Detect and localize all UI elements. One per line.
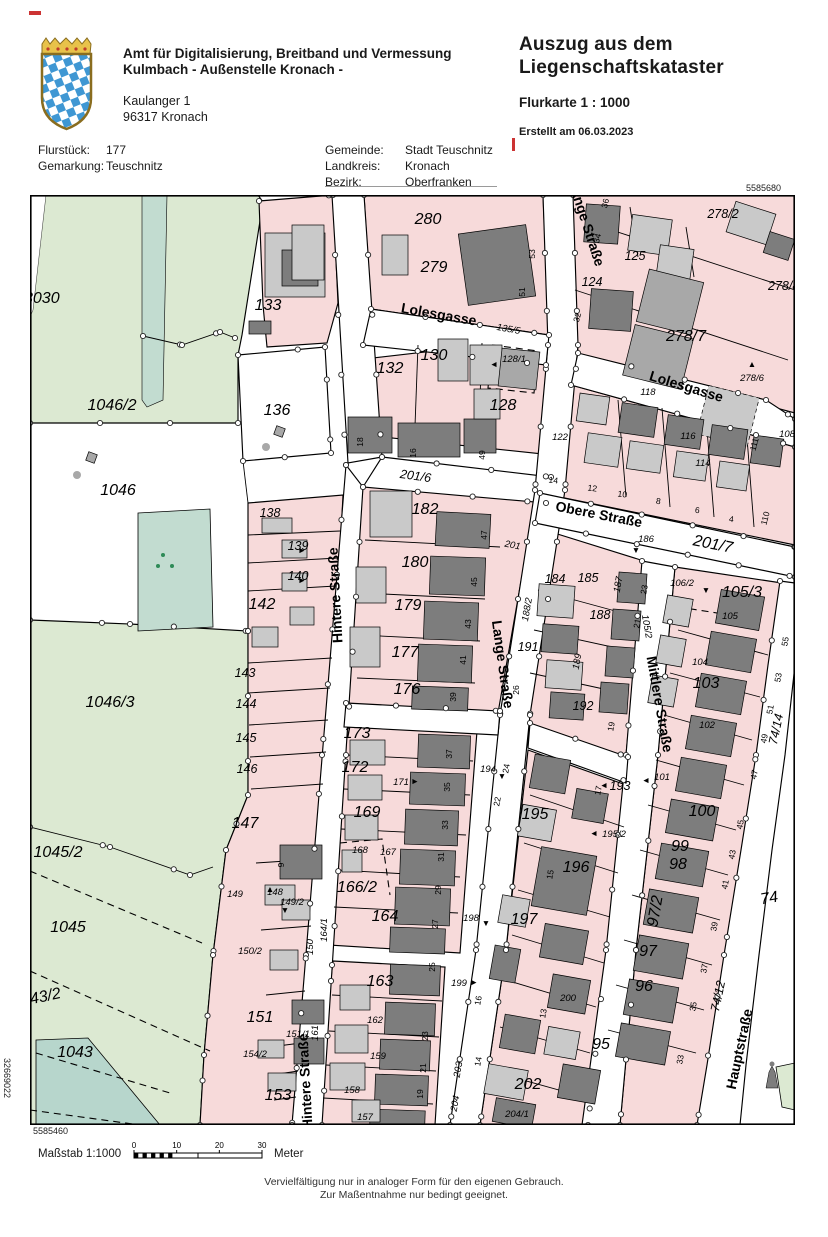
map-label: 151 bbox=[247, 1009, 274, 1026]
boundary-point bbox=[543, 500, 548, 505]
boundary-point bbox=[610, 887, 615, 892]
boundary-point bbox=[393, 703, 398, 708]
map-label: 47 bbox=[479, 530, 489, 540]
boundary-point bbox=[603, 947, 608, 952]
boundary-point bbox=[140, 333, 145, 338]
building bbox=[599, 682, 629, 714]
boundary-point bbox=[343, 752, 348, 757]
boundary-point bbox=[303, 956, 308, 961]
map-label: 18 bbox=[355, 437, 365, 447]
boundary-point bbox=[470, 494, 475, 499]
map-label: 45 bbox=[734, 819, 746, 830]
map-label: 35 bbox=[687, 1001, 699, 1012]
boundary-point bbox=[205, 1013, 210, 1018]
boundary-point bbox=[316, 791, 321, 796]
building bbox=[252, 627, 278, 647]
map-label: 15 bbox=[544, 869, 556, 880]
map-label: 278/7 bbox=[665, 328, 707, 345]
map-label: 167 bbox=[380, 847, 397, 858]
boundary-point bbox=[245, 628, 250, 633]
boundary-point bbox=[741, 533, 746, 538]
boundary-point bbox=[646, 838, 651, 843]
boundary-point bbox=[336, 869, 341, 874]
map-label: 102 bbox=[699, 720, 716, 731]
map-label: 204/1 bbox=[504, 1109, 529, 1120]
boundary-point bbox=[324, 377, 329, 382]
map-label: 1045/2 bbox=[34, 844, 83, 861]
boundary-point bbox=[496, 999, 501, 1004]
info-labels-right: Gemeinde: Landkreis: Bezirk: bbox=[325, 142, 384, 190]
map-label: 188 bbox=[590, 608, 611, 622]
boundary-point bbox=[524, 539, 529, 544]
document-title: Auszug aus dem Liegenschaftskataster bbox=[519, 33, 724, 79]
boundary-point bbox=[366, 252, 371, 257]
building bbox=[572, 788, 609, 823]
boundary-point bbox=[333, 252, 338, 257]
map-label: 158 bbox=[344, 1085, 361, 1096]
boundary-point bbox=[360, 342, 365, 347]
map-label: 45 bbox=[469, 577, 479, 587]
boundary-point bbox=[705, 1053, 710, 1058]
boundary-point bbox=[357, 539, 362, 544]
map-label: 154/2 bbox=[243, 1049, 267, 1060]
map-label: 200 bbox=[559, 993, 577, 1004]
boundary-point bbox=[753, 757, 758, 762]
map-label: 196 bbox=[563, 859, 590, 876]
boundary-point bbox=[721, 952, 726, 957]
map-label: 186 bbox=[638, 534, 655, 545]
map-label: 161 bbox=[310, 1025, 321, 1041]
map-label: 163 bbox=[367, 973, 394, 990]
boundary-point bbox=[625, 754, 630, 759]
building bbox=[618, 403, 658, 438]
map-label: 1043 bbox=[57, 1044, 93, 1061]
boundary-point bbox=[538, 424, 543, 429]
building bbox=[716, 461, 749, 491]
map-label: 172 bbox=[342, 759, 369, 776]
building bbox=[539, 923, 588, 964]
map-label: ▼ bbox=[702, 585, 710, 595]
map-label: 193 bbox=[610, 779, 631, 793]
boundary-point bbox=[623, 1057, 628, 1062]
boundary-point bbox=[235, 420, 240, 425]
boundary-point bbox=[546, 332, 551, 337]
map-label: 25 bbox=[427, 962, 437, 972]
map-label: 1046 bbox=[100, 482, 136, 499]
boundary-point bbox=[537, 654, 542, 659]
boundary-point bbox=[763, 397, 768, 402]
scale-bar-part bbox=[134, 1153, 138, 1158]
boundary-point bbox=[735, 390, 740, 395]
boundary-point bbox=[633, 947, 638, 952]
map-label: 145 bbox=[236, 731, 257, 745]
boundary-point bbox=[573, 366, 578, 371]
map-label: 130 bbox=[421, 347, 448, 364]
map-label: ▲ bbox=[748, 359, 756, 369]
cadastral-map: 30301046/210461046/31045/21045143/210431… bbox=[30, 195, 795, 1125]
boundary-point bbox=[480, 884, 485, 889]
map-label: 194 bbox=[480, 764, 496, 775]
boundary-point bbox=[107, 844, 112, 849]
boundary-point bbox=[343, 462, 348, 467]
scale-tick-label: 0 bbox=[132, 1141, 137, 1150]
building bbox=[429, 556, 485, 596]
boundary-point bbox=[777, 578, 782, 583]
map-label: 104 bbox=[692, 657, 708, 668]
scale-bar: 0102030 bbox=[128, 1141, 268, 1168]
boundary-point bbox=[489, 467, 494, 472]
map-label: 74 bbox=[759, 889, 780, 909]
map-label: 10 bbox=[617, 488, 628, 499]
boundary-point bbox=[724, 934, 729, 939]
boundary-point bbox=[781, 441, 786, 446]
map-label: 55 bbox=[779, 636, 791, 647]
boundary-point bbox=[532, 487, 537, 492]
boundary-point bbox=[379, 454, 384, 459]
map-label: 125 bbox=[625, 249, 646, 263]
building bbox=[390, 927, 446, 954]
map-label: 124 bbox=[582, 275, 603, 289]
boundary-point bbox=[449, 1114, 454, 1119]
map-label: 150 bbox=[305, 938, 316, 955]
map-label: 133 bbox=[255, 297, 282, 314]
map-label: 179 bbox=[395, 597, 422, 614]
boundary-point bbox=[322, 344, 327, 349]
building bbox=[557, 1064, 600, 1104]
boundary-point bbox=[753, 432, 758, 437]
boundary-point bbox=[573, 736, 578, 741]
map-label: 23 bbox=[638, 584, 650, 595]
map-label: 1045 bbox=[50, 919, 86, 936]
boundary-point bbox=[466, 999, 471, 1004]
map-label: 14 bbox=[548, 474, 559, 485]
map-label: 128/1 bbox=[502, 354, 526, 365]
boundary-point bbox=[100, 843, 105, 848]
boundary-point bbox=[761, 697, 766, 702]
map-symbol bbox=[73, 471, 81, 479]
boundary-point bbox=[562, 487, 567, 492]
boundary-point bbox=[618, 1112, 623, 1117]
map-label: 53 bbox=[772, 672, 784, 683]
map-label: 168 bbox=[352, 845, 369, 856]
map-label: ► bbox=[411, 776, 419, 786]
map-label: 198 bbox=[463, 913, 480, 924]
map-label: ▼ bbox=[632, 545, 640, 555]
map-label: 23 bbox=[420, 1031, 430, 1041]
boundary-point bbox=[312, 846, 317, 851]
boundary-point bbox=[563, 482, 568, 487]
building bbox=[605, 646, 635, 678]
boundary-point bbox=[339, 814, 344, 819]
boundary-point bbox=[201, 1052, 206, 1057]
map-label: 14 bbox=[472, 1056, 484, 1067]
map-label: 31 bbox=[436, 852, 446, 862]
map-label: 33 bbox=[674, 1054, 686, 1065]
boundary-point bbox=[575, 350, 580, 355]
map-label: 184 bbox=[545, 572, 566, 586]
boundary-point bbox=[332, 923, 337, 928]
building bbox=[576, 393, 610, 425]
map-label: 33 bbox=[440, 820, 450, 830]
print-crop-mark bbox=[29, 11, 41, 15]
disclaimer-text: Vervielfältigung nur in analoger Form fü… bbox=[0, 1176, 828, 1202]
map-label: ► bbox=[470, 977, 478, 987]
cadastral-extract-page: { "header": { "office_name": "Amt für Di… bbox=[0, 0, 828, 1237]
building bbox=[529, 754, 570, 794]
building bbox=[499, 1014, 540, 1054]
boundary-point bbox=[368, 306, 373, 311]
map-label: 195 bbox=[522, 806, 549, 823]
map-label: 191 bbox=[518, 640, 539, 654]
boundary-point bbox=[360, 484, 365, 489]
boundary-point bbox=[479, 1114, 484, 1119]
map-label: 122 bbox=[552, 432, 569, 443]
building bbox=[270, 950, 298, 970]
boundary-point bbox=[630, 668, 635, 673]
boundary-point bbox=[240, 458, 245, 463]
scale-tick-label: 20 bbox=[215, 1141, 224, 1150]
map-label: 19 bbox=[605, 721, 617, 732]
office-name: Amt für Digitalisierung, Breitband und V… bbox=[123, 46, 452, 78]
map-label: 176 bbox=[394, 681, 421, 698]
boundary-point bbox=[598, 996, 603, 1001]
building bbox=[384, 1002, 435, 1036]
map-label: 162 bbox=[367, 1015, 384, 1026]
boundary-point bbox=[639, 558, 644, 563]
scale-bar-part bbox=[151, 1153, 155, 1158]
building bbox=[335, 1025, 368, 1053]
boundary-point bbox=[210, 952, 215, 957]
boundary-point bbox=[99, 620, 104, 625]
boundary-point bbox=[525, 499, 530, 504]
boundary-point bbox=[728, 425, 733, 430]
boundary-point bbox=[328, 437, 333, 442]
boundary-point bbox=[200, 1078, 205, 1083]
boundary-point bbox=[171, 867, 176, 872]
boundary-point bbox=[542, 250, 547, 255]
map-label: 177 bbox=[392, 644, 420, 661]
boundary-point bbox=[532, 520, 537, 525]
building bbox=[541, 624, 579, 654]
map-label: 142 bbox=[249, 596, 276, 613]
boundary-point bbox=[127, 621, 132, 626]
boundary-point bbox=[672, 564, 677, 569]
map-label: 157 bbox=[357, 1112, 374, 1123]
map-label: 195/2 bbox=[602, 829, 626, 840]
map-label: 17 bbox=[592, 785, 604, 796]
map-label: 279 bbox=[420, 259, 448, 276]
map-label: ◄ bbox=[642, 775, 650, 785]
map-label: 12 bbox=[587, 482, 598, 493]
map-label: 144 bbox=[236, 697, 257, 711]
map-label: 280 bbox=[414, 211, 442, 228]
building bbox=[531, 847, 597, 916]
bavaria-coat-of-arms bbox=[36, 36, 96, 132]
info-values-left: 177 Teuschnitz bbox=[106, 142, 163, 174]
boundary-point bbox=[655, 752, 660, 757]
building bbox=[348, 775, 382, 800]
map-label: 53 bbox=[527, 249, 537, 259]
building bbox=[292, 225, 324, 280]
map-label: 159 bbox=[370, 1051, 387, 1062]
info-divider bbox=[325, 186, 497, 187]
map-label: 39 bbox=[708, 921, 720, 932]
parcel-area bbox=[138, 509, 213, 631]
boundary-point bbox=[434, 461, 439, 466]
boundary-point bbox=[628, 1002, 633, 1007]
map-label: 98 bbox=[669, 856, 687, 873]
scale-bar-part bbox=[143, 1153, 147, 1158]
building bbox=[350, 627, 380, 667]
map-label: 278/6 bbox=[739, 373, 764, 384]
boundary-point bbox=[696, 1112, 701, 1117]
map-label: 180 bbox=[402, 554, 429, 571]
map-label: 16 bbox=[472, 995, 484, 1006]
map-label: 182 bbox=[412, 501, 439, 518]
boundary-point bbox=[217, 329, 222, 334]
boundary-point bbox=[510, 884, 515, 889]
boundary-point bbox=[515, 596, 520, 601]
boundary-point bbox=[527, 712, 532, 717]
map-label: 29 bbox=[433, 885, 443, 895]
boundary-point bbox=[504, 942, 509, 947]
boundary-point bbox=[415, 489, 420, 494]
boundary-point bbox=[232, 335, 237, 340]
map-label: 37 bbox=[444, 749, 454, 759]
boundary-point bbox=[353, 594, 358, 599]
scale-bar-part bbox=[160, 1153, 164, 1158]
map-label: 19 bbox=[415, 1089, 425, 1099]
boundary-point bbox=[308, 901, 313, 906]
map-label: 202 bbox=[514, 1076, 542, 1093]
boundary-point bbox=[626, 723, 631, 728]
map-label: 138 bbox=[260, 506, 281, 520]
building bbox=[584, 433, 622, 467]
boundary-point bbox=[325, 1033, 330, 1038]
boundary-point bbox=[522, 769, 527, 774]
boundary-point bbox=[545, 342, 550, 347]
map-label: 51 bbox=[517, 287, 527, 297]
grid-coordinate-bottom-left: 5585460 bbox=[33, 1126, 68, 1136]
document-subtitle: Flurkarte 1 : 1000 bbox=[519, 95, 630, 110]
boundary-point bbox=[667, 619, 672, 624]
map-label: 101 bbox=[654, 772, 670, 783]
print-crop-mark bbox=[512, 138, 515, 151]
map-label: 49 bbox=[758, 733, 770, 744]
boundary-point bbox=[319, 752, 324, 757]
boundary-point bbox=[328, 450, 333, 455]
map-label: 22 bbox=[491, 796, 503, 807]
boundary-point bbox=[415, 348, 420, 353]
map-label: 95 bbox=[592, 1036, 610, 1053]
parcel-boundary bbox=[243, 461, 248, 503]
map-label: ► bbox=[298, 545, 306, 555]
office-address: Kaulanger 1 96317 Kronach bbox=[123, 93, 208, 125]
map-label: 164 bbox=[372, 908, 399, 925]
map-label: 153 bbox=[265, 1087, 292, 1104]
building bbox=[464, 419, 496, 453]
boundary-point bbox=[235, 352, 240, 357]
map-symbol bbox=[161, 553, 165, 557]
map-label: 1046/3 bbox=[86, 694, 135, 711]
boundary-point bbox=[532, 330, 537, 335]
building bbox=[626, 441, 664, 473]
map-label: 171 bbox=[393, 777, 409, 788]
map-label: 100 bbox=[689, 803, 716, 820]
boundary-point bbox=[568, 382, 573, 387]
map-label: 164/1 bbox=[319, 918, 330, 942]
map-label: 169 bbox=[354, 804, 381, 821]
map-label: 43 bbox=[726, 849, 738, 860]
boundary-point bbox=[474, 942, 479, 947]
boundary-point bbox=[575, 342, 580, 347]
map-label: 27 bbox=[430, 919, 440, 929]
building bbox=[435, 512, 491, 549]
map-label: 173 bbox=[344, 725, 371, 742]
map-label: 21 bbox=[418, 1063, 428, 1073]
map-label: 147 bbox=[232, 815, 260, 832]
map-label: 47 bbox=[748, 769, 760, 780]
building bbox=[356, 567, 386, 603]
boundary-point bbox=[690, 523, 695, 528]
building bbox=[292, 1000, 324, 1024]
map-label: 150/2 bbox=[238, 946, 262, 957]
map-label: 24 bbox=[500, 763, 512, 774]
boundary-point bbox=[295, 347, 300, 352]
map-label: 143 bbox=[235, 666, 256, 680]
boundary-point bbox=[443, 706, 448, 711]
building bbox=[537, 584, 575, 618]
map-label: 128 bbox=[490, 397, 517, 414]
map-label: 16 bbox=[408, 448, 418, 458]
map-symbol bbox=[262, 443, 270, 451]
boundary-point bbox=[572, 250, 577, 255]
boundary-point bbox=[734, 875, 739, 880]
boundary-point bbox=[457, 1057, 462, 1062]
map-label: 116 bbox=[680, 431, 696, 442]
boundary-point bbox=[325, 682, 330, 687]
boundary-point bbox=[256, 198, 261, 203]
map-label: 103 bbox=[693, 675, 720, 692]
map-label: 51 bbox=[764, 704, 776, 715]
map-label: ► bbox=[298, 575, 306, 585]
boundary-point bbox=[487, 1057, 492, 1062]
boundary-point bbox=[544, 308, 549, 313]
map-label: 99 bbox=[671, 838, 689, 855]
boundary-point bbox=[187, 872, 192, 877]
boundary-point bbox=[537, 490, 542, 495]
boundary-point bbox=[370, 312, 375, 317]
map-label: 118 bbox=[640, 387, 656, 398]
boundary-point bbox=[477, 322, 482, 327]
boundary-point bbox=[743, 816, 748, 821]
scale-label: Maßstab 1:1000 bbox=[38, 1148, 121, 1160]
building bbox=[370, 491, 412, 537]
building bbox=[399, 849, 455, 886]
boundary-point bbox=[321, 736, 326, 741]
map-label: 278/2 bbox=[706, 207, 738, 221]
boundary-point bbox=[503, 947, 508, 952]
map-label: 21 bbox=[631, 618, 643, 629]
boundary-point bbox=[339, 517, 344, 522]
grid-coordinate-top-right: 5585680 bbox=[746, 183, 781, 193]
building bbox=[340, 985, 370, 1010]
boundary-point bbox=[179, 342, 184, 347]
map-label: 166/2 bbox=[337, 879, 377, 896]
info-values-right: Stadt Teuschnitz Kronach Oberfranken bbox=[405, 142, 493, 190]
map-label: 43 bbox=[463, 619, 473, 629]
map-label: 185 bbox=[578, 571, 599, 585]
